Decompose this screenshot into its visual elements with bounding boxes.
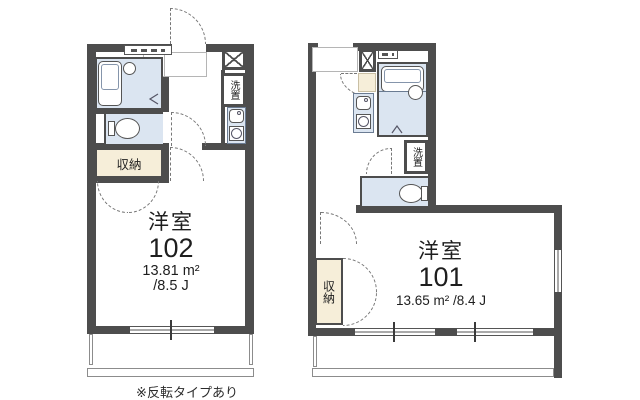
meter-box-icon xyxy=(222,49,246,70)
wall xyxy=(435,328,457,336)
washbasin-icon xyxy=(356,114,371,129)
balcony-floor xyxy=(87,368,254,377)
room-door-arc xyxy=(170,147,204,181)
shower-head-icon xyxy=(408,85,423,100)
window-tick xyxy=(474,322,476,342)
faucet-dot xyxy=(364,98,368,102)
room-label: 洋室 xyxy=(356,240,526,264)
toilet-tank xyxy=(108,121,115,136)
faucet-dot xyxy=(237,111,241,115)
window-tick xyxy=(393,322,395,342)
balcony-rail xyxy=(89,334,93,365)
wall xyxy=(554,205,562,250)
washbasin-bowl xyxy=(358,116,369,127)
closet-label: 収納 xyxy=(116,154,141,173)
room-area: 13.65 m² /8.4 J xyxy=(356,293,526,308)
closet-door-arc-right xyxy=(128,181,159,213)
window xyxy=(457,328,533,336)
room-number: 101 xyxy=(356,264,526,291)
entrance-door-arc xyxy=(170,8,206,44)
bathtub-icon xyxy=(98,61,122,106)
wall xyxy=(87,326,130,334)
hand-sink-icon xyxy=(229,109,244,123)
balcony-floor xyxy=(312,368,554,377)
toilet-icon xyxy=(115,118,140,139)
washbasin-icon xyxy=(229,126,244,141)
room-door-arc xyxy=(321,212,357,244)
room-text-102: 洋室 102 13.81 m² /8.5 J xyxy=(95,211,247,294)
footnote: ※反転タイプあり xyxy=(102,382,272,400)
window xyxy=(554,250,562,292)
laundry-label: 洗置 xyxy=(409,147,424,167)
window xyxy=(355,328,435,336)
entrance-step xyxy=(312,47,358,72)
floorplan-canvas: 収納 洗置 洋室 102 13.81 m² xyxy=(0,0,640,400)
kitchen-burner-marks xyxy=(131,49,165,52)
toilet-door-arc xyxy=(171,112,206,146)
bathtub-inner-line xyxy=(384,69,421,83)
room-label: 洋室 xyxy=(95,211,247,235)
laundry-space-102: 洗置 xyxy=(221,73,246,107)
closet-door-arc-left xyxy=(97,181,128,213)
room-area-m2: 13.81 m² xyxy=(95,264,247,279)
wall xyxy=(214,326,254,334)
closet-101: 収納 xyxy=(315,258,343,325)
room-area-jo: /8.5 J xyxy=(95,279,247,294)
wall xyxy=(202,143,245,150)
entrance-step-line xyxy=(164,52,165,77)
toilet-icon xyxy=(399,184,423,203)
door-fold-icon xyxy=(390,123,404,135)
door-fold-icon xyxy=(146,92,160,106)
kitchen-counter-icon xyxy=(378,50,398,59)
meter-box-icon xyxy=(359,49,376,72)
laundry-label: 洗置 xyxy=(226,80,241,100)
window-tick xyxy=(170,320,172,340)
kitchen-counter-icon xyxy=(124,45,172,55)
toilet-tank xyxy=(421,186,428,201)
wall xyxy=(308,328,355,336)
washbasin-bowl xyxy=(231,128,242,139)
bathtub-inner-line xyxy=(101,64,119,90)
wall xyxy=(533,328,554,336)
room-text-101: 洋室 101 13.65 m² /8.4 J xyxy=(356,240,526,308)
closet-102: 収納 xyxy=(95,148,163,178)
balcony-rail xyxy=(313,336,317,367)
window xyxy=(130,326,214,334)
closet-label: 収納 xyxy=(321,280,338,304)
hand-sink-icon xyxy=(356,96,371,110)
laundry-space-101: 洗置 xyxy=(404,140,428,174)
wall xyxy=(554,292,562,378)
shower-head-icon xyxy=(123,62,136,75)
toilet-door-leaf xyxy=(391,148,392,174)
balcony-rail xyxy=(249,334,253,365)
toilet-door-arc xyxy=(366,148,391,174)
kitchen-burner-marks xyxy=(382,53,394,56)
room-number: 102 xyxy=(95,235,247,262)
